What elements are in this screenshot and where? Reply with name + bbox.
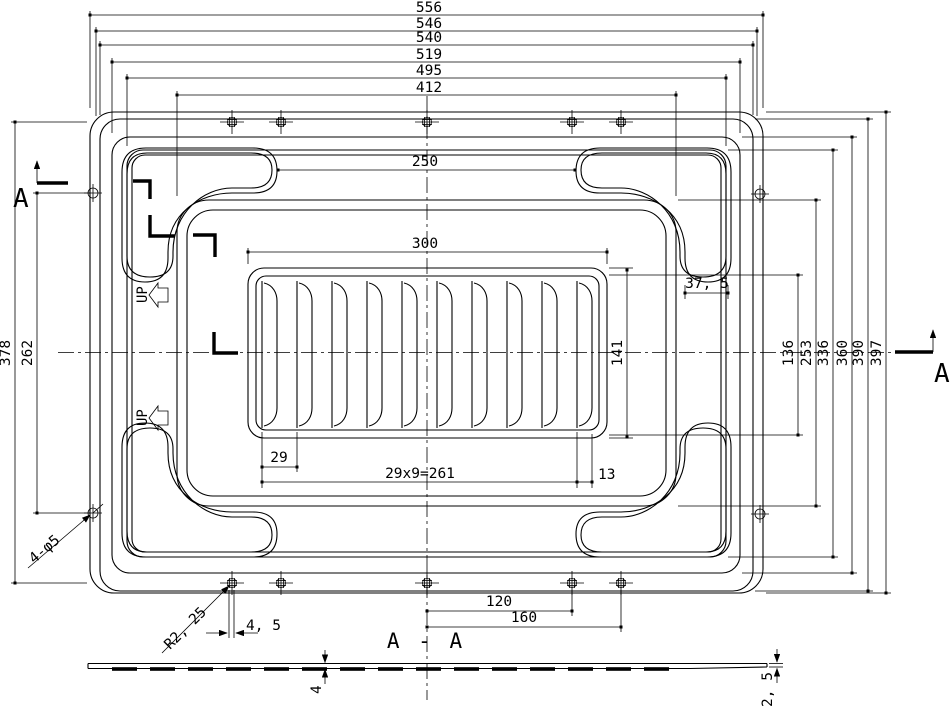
plateau-top-inner-line	[187, 210, 666, 496]
up-mark-upper	[135, 283, 168, 307]
dim-397: 397	[869, 340, 885, 366]
centerlines	[58, 96, 893, 700]
panel-rim-line-1	[100, 119, 753, 591]
corner-slot-bottom-left	[122, 423, 277, 557]
leader-notes: 4-φ5 R2, 25	[26, 504, 229, 653]
dim-253: 253	[799, 340, 815, 366]
corner-slot-bottom-right	[576, 423, 731, 557]
dim-300: 300	[412, 236, 438, 252]
dim-160: 160	[511, 610, 537, 626]
dim-4-5: 4, 5	[246, 618, 281, 634]
corner-slot-top-left	[122, 148, 277, 282]
bend-mark-3	[193, 235, 215, 257]
dim-390: 390	[851, 340, 867, 366]
section-marker-left: A	[13, 161, 68, 214]
dim-141: 141	[610, 340, 626, 366]
note-4-phi5: 4-φ5	[26, 532, 63, 567]
dimensions-top: 556 546 540 519 495 412 250 300	[90, 0, 763, 252]
dim-336: 336	[816, 340, 832, 366]
drawing-sheet: UP	[0, 0, 952, 710]
panel-engineering-drawing: UP	[0, 0, 952, 710]
dim-29x9: 29x9=261	[385, 466, 455, 482]
dim-thickness-2-5: 2, 5	[760, 672, 776, 707]
dim-495: 495	[416, 63, 442, 79]
mount-holes-top-row	[220, 110, 633, 134]
dim-120: 120	[486, 594, 512, 610]
section-marker-letter: A	[934, 359, 950, 389]
dimensions-bottom: 29 29x9=261 13 120 160 4, 5	[206, 450, 621, 634]
dim-519: 519	[416, 47, 442, 63]
dim-37-5: 37, 5	[685, 276, 729, 292]
dim-thickness-4: 4	[309, 685, 325, 694]
dim-378: 378	[0, 340, 14, 366]
dim-360: 360	[835, 340, 851, 366]
dim-540: 540	[416, 30, 442, 46]
corner-slot-top-right	[576, 148, 731, 282]
louver-recess-inner	[256, 276, 599, 430]
dim-29: 29	[270, 450, 287, 466]
louver-recess-outer	[248, 268, 607, 438]
section-title: A - A	[387, 629, 465, 653]
section-marker-right: A	[895, 330, 950, 389]
dim-262: 262	[20, 340, 36, 366]
section-marker-letter: A	[13, 184, 29, 214]
section-louver-cuts	[112, 667, 669, 671]
extension-lines	[11, 11, 891, 638]
up-mark-lower	[135, 406, 168, 430]
note-r2-25: R2, 25	[162, 604, 210, 652]
dim-250: 250	[412, 154, 438, 170]
bend-reference-marks	[133, 181, 238, 353]
dim-412: 412	[416, 80, 442, 96]
bend-mark-4	[214, 332, 238, 353]
bend-mark-1	[133, 181, 150, 199]
section-a-a-view: A - A 4 2, 5	[88, 629, 783, 707]
dim-556: 556	[416, 0, 442, 16]
dim-136: 136	[781, 340, 797, 366]
dim-13: 13	[598, 467, 615, 483]
